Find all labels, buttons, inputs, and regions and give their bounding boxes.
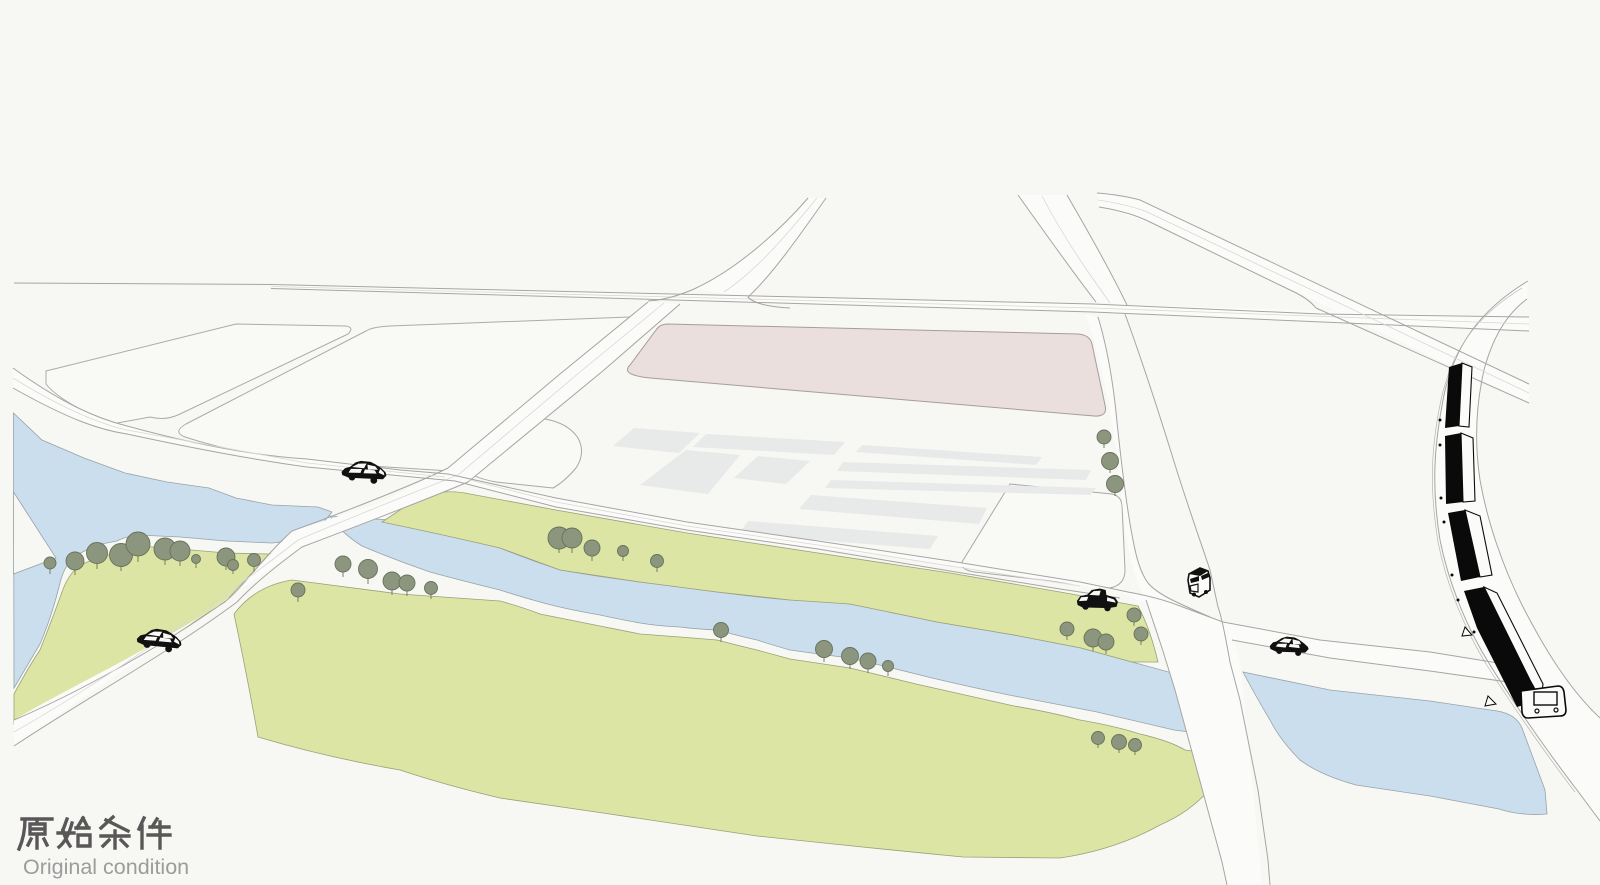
- svg-text:Original condition: Original condition: [23, 855, 189, 879]
